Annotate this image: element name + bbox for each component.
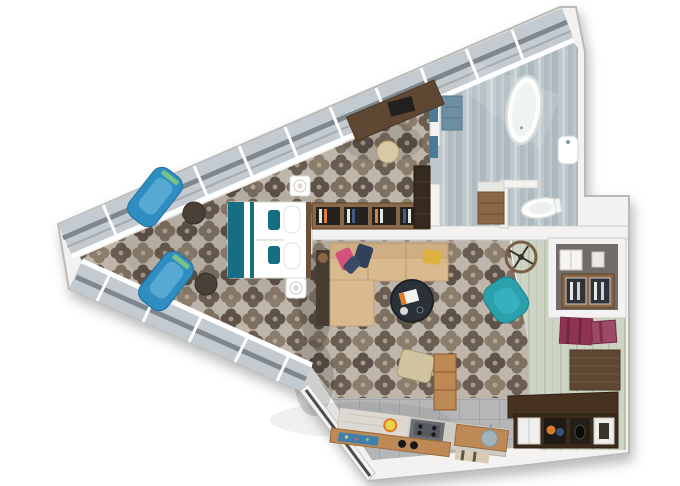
hanging-towel-2: [429, 136, 438, 158]
tall-cabinet: [434, 354, 456, 410]
nightstand-top: [290, 176, 310, 196]
pillow-2: [284, 243, 300, 269]
shoe-bench: [508, 392, 618, 448]
minibar-niche: [548, 238, 626, 318]
floor-lamp: [318, 253, 328, 263]
wardrobe: [414, 166, 430, 228]
bed: [228, 202, 311, 278]
side-table-2: [195, 273, 217, 295]
accent-pillow-2: [268, 246, 280, 264]
towel-shelf: [442, 96, 462, 130]
sink-faucet: [566, 140, 570, 144]
coffee-table: [391, 280, 433, 322]
floor-mat-1: [559, 317, 592, 345]
desk-stool: [377, 141, 399, 163]
yellow-pillow: [422, 249, 442, 265]
floorplan-svg: [0, 0, 680, 486]
wood-wall-panel: [570, 350, 620, 390]
floor-mat-2: [591, 320, 616, 344]
fruit-plate: [384, 419, 397, 432]
floorplan-image: [0, 0, 680, 486]
vanity: [478, 182, 504, 224]
nightstand-bottom: [286, 278, 306, 298]
bookshelf: [312, 203, 430, 229]
fridge-cabinet: [562, 274, 614, 308]
headboard: [306, 202, 311, 278]
accent-pillow-1: [268, 210, 280, 230]
pillow-1: [284, 206, 300, 233]
side-table-1: [183, 202, 205, 224]
